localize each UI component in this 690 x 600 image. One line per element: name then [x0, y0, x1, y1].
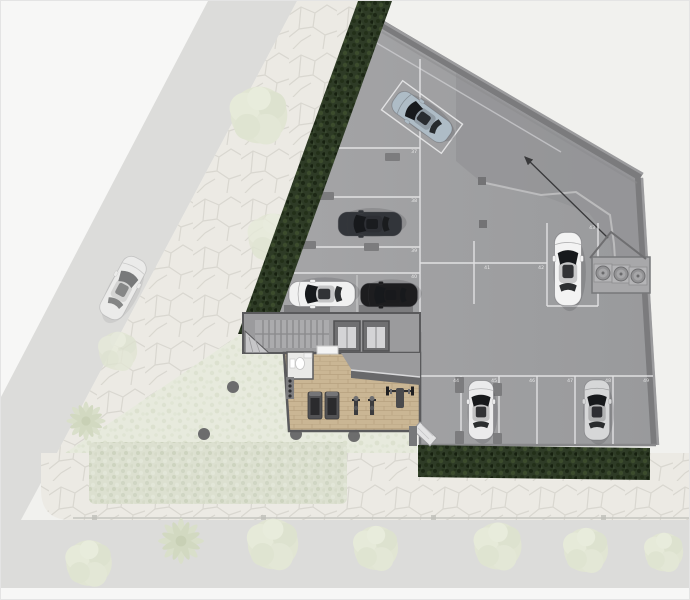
column	[479, 220, 487, 228]
treadmill	[325, 392, 339, 419]
tree-icon	[247, 519, 298, 570]
wc-room	[287, 352, 313, 379]
stall-number: 37	[411, 149, 417, 155]
car-white-west-stall	[289, 277, 360, 308]
elevator-2	[363, 321, 389, 351]
column-dot	[198, 428, 210, 440]
stall-number: 42	[538, 265, 544, 271]
car-white-south-stall	[467, 381, 498, 444]
circle-pad	[612, 265, 630, 283]
stall-number: 45	[491, 378, 497, 384]
suv-dark-west-stall	[338, 208, 406, 238]
garden-hedge-faded	[89, 442, 347, 504]
stall-number: 46	[529, 378, 535, 384]
stall-number: 40	[411, 274, 417, 280]
column	[478, 177, 486, 185]
tree-icon	[230, 87, 288, 145]
tree-icon	[98, 332, 137, 371]
stall-number: 44	[453, 378, 459, 384]
stall-number: 39	[411, 248, 417, 254]
tree-icon	[65, 540, 112, 587]
circle-pad	[594, 264, 612, 282]
tree-icon	[563, 528, 608, 573]
treadmill	[308, 392, 322, 419]
gym-room	[284, 346, 437, 446]
toilet-bowl	[296, 358, 305, 370]
stall-number: 41	[484, 265, 490, 271]
stall-number: 38	[411, 198, 417, 204]
site-plan-canvas: 37 38 39 40 41 42 43 44 45 46 47 48 49	[0, 0, 690, 600]
stall-number: 49	[643, 378, 649, 384]
tree-icon	[353, 526, 398, 571]
floor-plan-svg: 37 38 39 40 41 42 43 44 45 46 47 48 49	[1, 1, 690, 600]
car-black-west-stall	[361, 279, 422, 308]
street-edge-south	[1, 588, 690, 600]
tree-icon	[474, 522, 522, 570]
sink	[304, 353, 312, 358]
palm-tree-icon	[66, 401, 105, 440]
toilet-tank	[290, 359, 295, 368]
car-white-east-stall	[553, 232, 586, 311]
palm-tree-icon	[158, 518, 204, 564]
stall-number: 43	[589, 225, 595, 231]
stall-number: 47	[567, 378, 573, 384]
staircase	[255, 320, 329, 348]
stall-number: 48	[605, 378, 611, 384]
hedge-south	[418, 445, 650, 480]
bench	[317, 346, 338, 354]
tree-icon	[644, 533, 683, 572]
circle-pad	[629, 267, 647, 285]
car-silver-south-stall	[582, 380, 614, 445]
column-dot	[227, 381, 239, 393]
dumbbell-rack	[286, 377, 294, 399]
